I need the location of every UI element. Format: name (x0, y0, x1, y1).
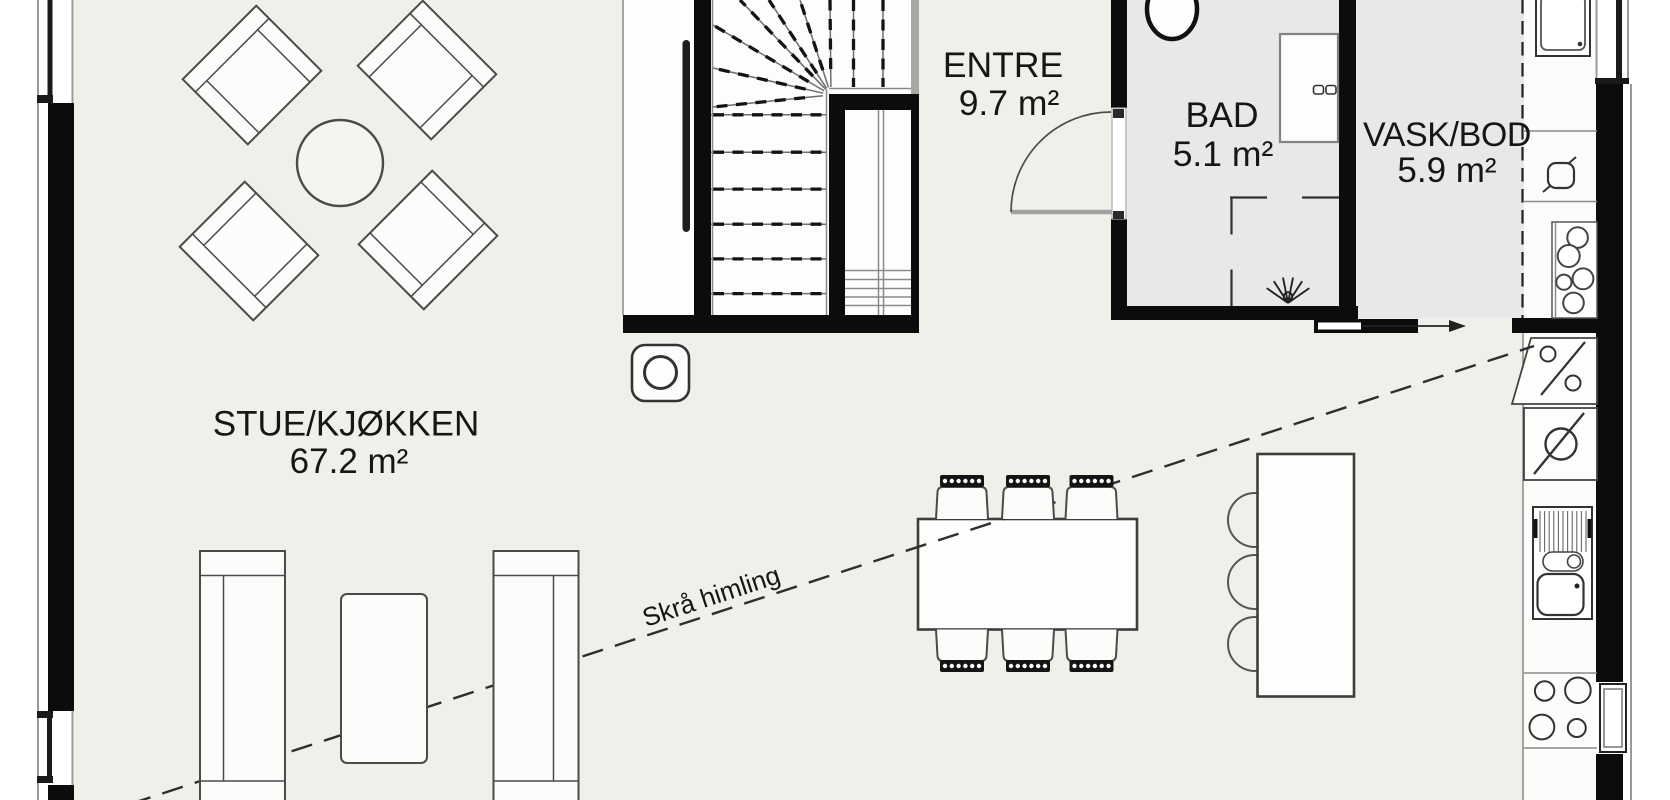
svg-text:9.7 m²: 9.7 m² (959, 83, 1060, 123)
svg-text:5.9 m²: 5.9 m² (1397, 151, 1496, 190)
svg-text:5.1 m²: 5.1 m² (1173, 134, 1274, 174)
svg-text:ENTRE: ENTRE (943, 45, 1063, 85)
svg-text:BAD: BAD (1186, 95, 1259, 135)
svg-text:STUE/KJØKKEN: STUE/KJØKKEN (213, 405, 479, 444)
svg-text:67.2 m²: 67.2 m² (290, 442, 409, 481)
svg-text:VASK/BOD: VASK/BOD (1363, 116, 1531, 154)
